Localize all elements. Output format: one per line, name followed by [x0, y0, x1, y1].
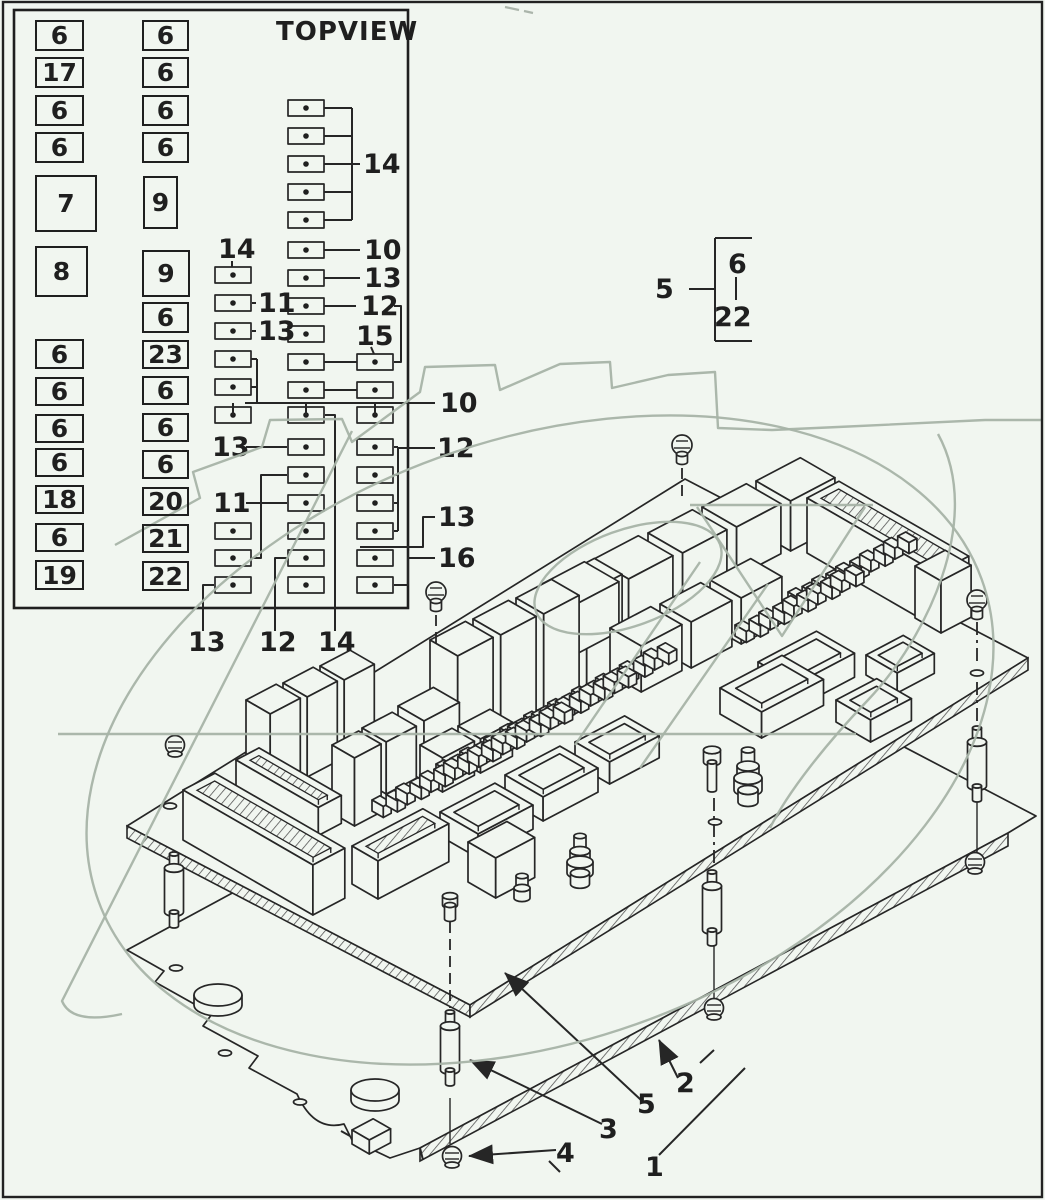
callout-10-right: 10	[440, 388, 478, 419]
part-ref-box: 19	[35, 560, 84, 590]
topview-title: TOPVIEW	[276, 17, 418, 47]
callout-4: 4	[556, 1138, 575, 1169]
part-ref-box: 6	[142, 413, 189, 442]
callout-5: 5	[637, 1089, 656, 1120]
callout-2: 2	[676, 1068, 695, 1099]
part-ref-box: 6	[35, 448, 84, 477]
callout-12-bottom: 12	[259, 627, 297, 658]
callout-14-a: 14	[218, 234, 256, 265]
part-ref-box: 6	[142, 450, 189, 479]
callout-12-row: 12	[361, 291, 399, 322]
callout-11-left: 11	[213, 488, 251, 519]
callout-13-bottom: 13	[188, 627, 226, 658]
part-ref-box: 6	[35, 339, 84, 369]
part-ref-box: 9	[143, 176, 178, 229]
diagram-canvas: TOPVIEW 14 10 13 12 15 14 11 13 10 12 13…	[0, 0, 1045, 1200]
part-ref-box: 8	[35, 246, 88, 297]
part-ref-box: 20	[142, 487, 189, 516]
part-ref-box: 22	[142, 561, 189, 591]
part-ref-box: 9	[142, 250, 190, 297]
callout-1: 1	[645, 1152, 664, 1183]
part-ref-box: 6	[142, 57, 189, 88]
part-ref-box: 6	[142, 302, 189, 333]
part-ref-box: 17	[35, 57, 84, 88]
part-ref-box: 6	[35, 377, 84, 406]
part-ref-box: 7	[35, 175, 97, 232]
callout-15: 15	[356, 321, 394, 352]
part-ref-box: 6	[142, 132, 189, 163]
part-ref-box: 23	[142, 340, 189, 369]
callout-14-bracket: 14	[363, 149, 401, 180]
callout-13-a: 13	[258, 316, 296, 347]
part-ref-box: 6	[35, 414, 84, 443]
legend-first-6: 6	[728, 249, 747, 280]
callout-13-right: 13	[438, 502, 476, 533]
part-ref-box: 6	[142, 376, 189, 405]
callout-11-a: 11	[258, 288, 296, 319]
part-ref-box: 6	[142, 95, 189, 126]
callout-14-bottom: 14	[318, 627, 356, 658]
part-ref-box: 6	[35, 132, 84, 163]
part-ref-box: 6	[35, 95, 84, 126]
legend-last-22: 22	[714, 302, 752, 333]
part-ref-box: 6	[142, 20, 189, 51]
part-ref-box: 18	[35, 485, 84, 514]
callout-3: 3	[599, 1114, 618, 1145]
legend-item-5: 5	[655, 274, 674, 305]
part-ref-box: 21	[142, 524, 189, 553]
callout-13-row: 13	[364, 263, 402, 294]
callout-16-right: 16	[438, 543, 476, 574]
part-ref-box: 6	[35, 20, 84, 51]
part-ref-box: 6	[35, 523, 84, 552]
callout-10-row: 10	[364, 235, 402, 266]
